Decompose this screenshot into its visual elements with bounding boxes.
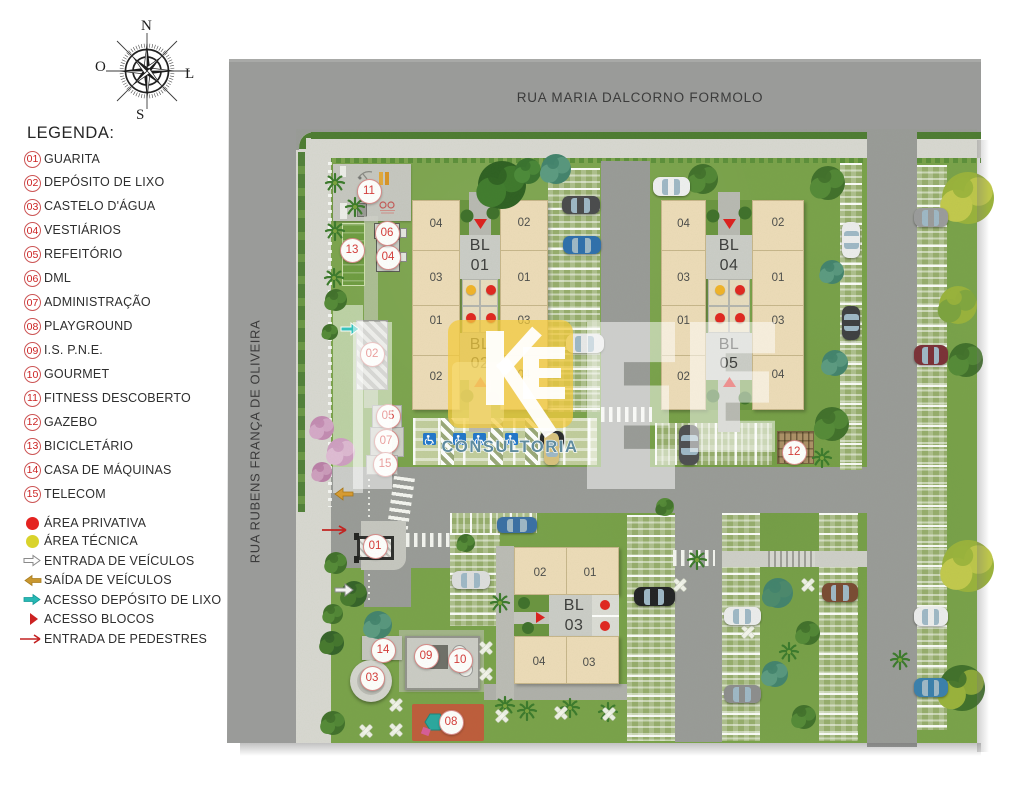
svg-text:CONSULTORIA: CONSULTORIA: [441, 438, 578, 456]
